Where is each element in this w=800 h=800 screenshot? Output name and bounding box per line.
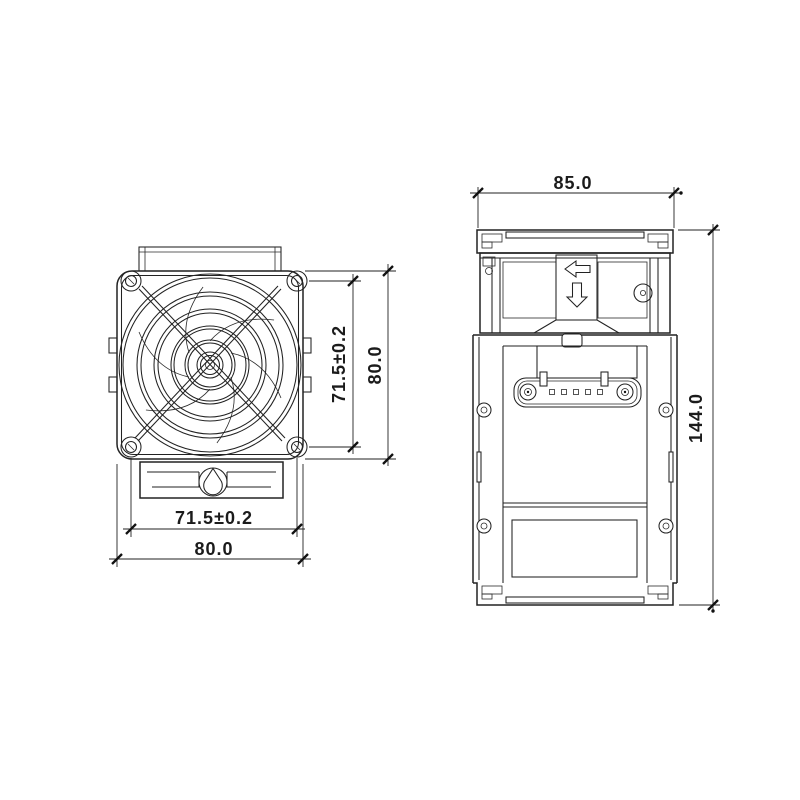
right-vent-window <box>598 262 647 318</box>
top-cap <box>477 230 673 253</box>
terminal-block <box>514 378 641 407</box>
left-vent-window <box>503 262 556 318</box>
housing-screw <box>634 284 652 302</box>
left-arrow-icon <box>565 261 590 277</box>
center-body <box>503 346 647 577</box>
dim-outer-height: 80.0 <box>365 345 385 384</box>
rail-slot <box>477 452 481 482</box>
front-view-dimensions: 71.5±0.2 80.0 71.5±0.2 80.0 <box>109 264 396 567</box>
drawing-canvas: 71.5±0.2 80.0 71.5±0.2 80.0 <box>0 0 800 800</box>
side-view-dimensions: 85.0 144.0 <box>470 173 720 613</box>
rail-screw <box>659 403 673 417</box>
front-view <box>109 247 311 498</box>
latch-tab <box>562 334 582 347</box>
rail-slot <box>669 452 673 482</box>
mounting-bracket <box>140 462 283 498</box>
lower-panel <box>512 520 637 577</box>
dim-hole-spacing-vertical: 71.5±0.2 <box>329 325 349 403</box>
bottom-base <box>473 583 677 605</box>
dim-outer-width: 80.0 <box>194 539 233 559</box>
dim-hole-spacing-horizontal: 71.5±0.2 <box>175 508 253 528</box>
terminal-screw <box>617 384 633 400</box>
terminal-contacts <box>550 390 603 395</box>
bottom-bar <box>506 597 644 603</box>
keyhole-slot <box>204 469 223 495</box>
top-duct <box>139 247 281 271</box>
down-arrow-icon <box>567 283 587 307</box>
corner-screw <box>287 437 307 457</box>
rail-screw <box>477 519 491 533</box>
rail-screw <box>659 519 673 533</box>
small-rivet <box>486 268 493 275</box>
dim-side-width: 85.0 <box>553 173 592 193</box>
raised-block <box>537 346 637 378</box>
rail-screw <box>477 403 491 417</box>
terminal-tab <box>540 372 547 386</box>
terminal-tab <box>601 372 608 386</box>
terminal-screw <box>520 384 536 400</box>
mounting-rails <box>473 334 677 583</box>
dim-side-height: 144.0 <box>686 393 706 443</box>
side-view <box>473 230 677 605</box>
upper-housing <box>480 253 670 333</box>
technical-drawing: 71.5±0.2 80.0 71.5±0.2 80.0 <box>0 0 800 800</box>
top-bar <box>506 232 644 238</box>
